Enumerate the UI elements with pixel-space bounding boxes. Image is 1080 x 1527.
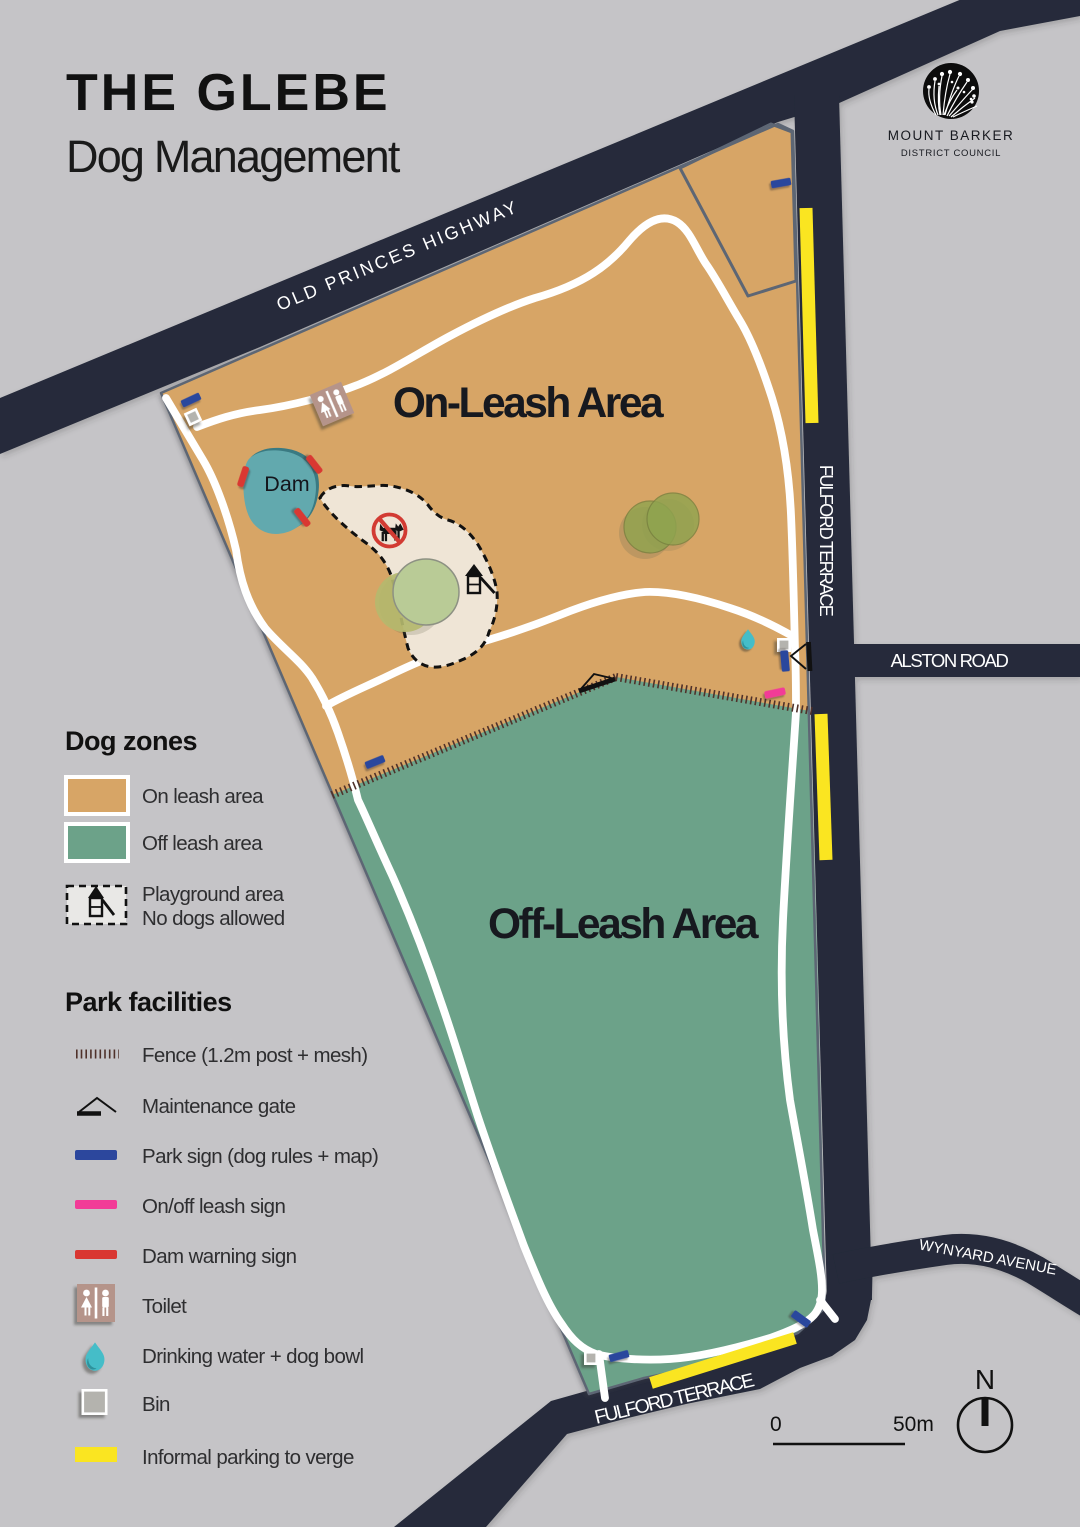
svg-text:Dog zones: Dog zones <box>65 726 197 756</box>
svg-text:Dog Management: Dog Management <box>66 131 401 182</box>
svg-text:0: 0 <box>770 1413 782 1436</box>
svg-text:DISTRICT COUNCIL: DISTRICT COUNCIL <box>901 148 1001 159</box>
svg-text:50m: 50m <box>893 1413 934 1436</box>
svg-text:Bin: Bin <box>142 1393 170 1416</box>
svg-text:Off leash area: Off leash area <box>142 832 263 855</box>
svg-text:Dam: Dam <box>264 472 309 496</box>
svg-text:Fence (1.2m post + mesh): Fence (1.2m post + mesh) <box>142 1044 367 1067</box>
svg-text:MOUNT BARKER: MOUNT BARKER <box>888 128 1015 143</box>
svg-text:THE GLEBE: THE GLEBE <box>66 64 391 122</box>
svg-text:Informal parking to verge: Informal parking to verge <box>142 1446 354 1469</box>
svg-text:Drinking water + dog bowl: Drinking water + dog bowl <box>142 1345 363 1368</box>
svg-text:FULFORD TERRACE: FULFORD TERRACE <box>816 465 836 617</box>
svg-text:On leash area: On leash area <box>142 785 264 808</box>
svg-text:ALSTON ROAD: ALSTON ROAD <box>891 650 1009 671</box>
svg-text:On-Leash Area: On-Leash Area <box>393 380 664 427</box>
svg-text:No dogs allowed: No dogs allowed <box>142 907 285 930</box>
svg-text:On/off leash sign: On/off leash sign <box>142 1195 285 1218</box>
svg-text:N: N <box>975 1364 995 1395</box>
svg-text:Dam warning sign: Dam warning sign <box>142 1245 297 1268</box>
svg-text:Park facilities: Park facilities <box>65 987 232 1017</box>
svg-text:Toilet: Toilet <box>142 1295 187 1318</box>
svg-text:Off-Leash Area: Off-Leash Area <box>488 901 759 948</box>
svg-text:Maintenance gate: Maintenance gate <box>142 1095 296 1118</box>
svg-text:Park sign (dog rules + map): Park sign (dog rules + map) <box>142 1145 378 1168</box>
svg-text:Playground area: Playground area <box>142 883 285 906</box>
